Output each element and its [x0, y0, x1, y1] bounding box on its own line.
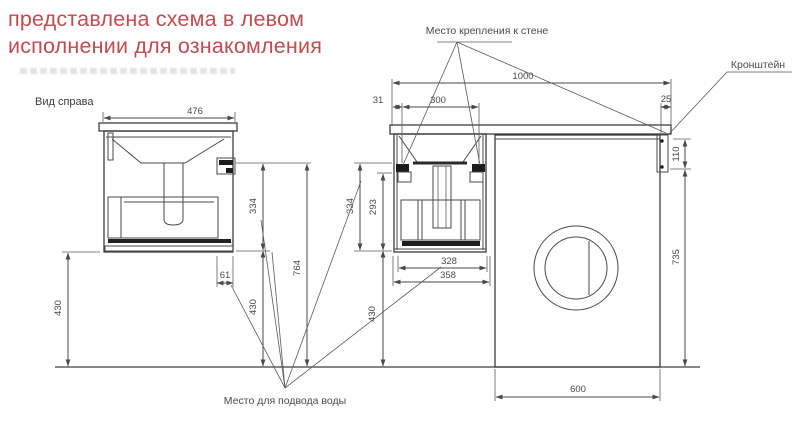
- dim-300: 300: [430, 95, 446, 106]
- side-cabinet: [104, 131, 233, 252]
- view-title: Вид справа: [35, 96, 94, 108]
- dim-430-front: 430: [367, 306, 378, 322]
- dim-430-side: 430: [248, 299, 259, 315]
- water-supply-label: Место для подвода воды: [224, 395, 346, 407]
- front-drawer: [401, 200, 480, 246]
- countertop-bracket: [657, 135, 668, 172]
- dim-430-left: 430: [53, 300, 64, 316]
- bracket-label: Кронштейн: [731, 59, 785, 71]
- side-bottom-rails: [105, 241, 233, 251]
- front-countertop: [390, 125, 671, 134]
- wall-mount-label: Место крепления к стене: [426, 25, 549, 37]
- technical-drawing: 476 430 61 334 430 764: [0, 0, 800, 426]
- side-countertop: [99, 123, 237, 131]
- front-drain-pipe: [433, 166, 451, 228]
- front-mount-bracket-right: [470, 164, 485, 182]
- washing-machine-body: [495, 135, 660, 367]
- drawing-sheet: представлена схема в левом исполнении дл…: [0, 0, 800, 426]
- front-mount-bracket-left: [396, 164, 411, 182]
- side-view-drawing: [99, 123, 237, 252]
- washing-machine-drawing: [495, 135, 668, 367]
- side-mount-detail: [217, 158, 235, 174]
- dim-735: 735: [671, 249, 682, 265]
- washing-machine-door: [534, 226, 618, 310]
- dim-25: 25: [661, 94, 672, 105]
- front-cabinet: [394, 134, 486, 252]
- dim-31: 31: [373, 95, 384, 106]
- dim-61: 61: [220, 270, 231, 281]
- dim-334-side: 334: [248, 198, 259, 214]
- front-sink-basin: [399, 136, 481, 162]
- front-view-drawing: [390, 125, 671, 252]
- dim-764: 764: [292, 260, 303, 276]
- dim-328: 328: [441, 256, 457, 267]
- dim-476: 476: [187, 106, 203, 117]
- bracket-callout: Кронштейн: [669, 59, 792, 134]
- dim-110: 110: [671, 146, 682, 161]
- dim-358: 358: [440, 270, 456, 281]
- dim-1000: 1000: [512, 71, 533, 82]
- side-view-dimensions: 476 430 61 334 430 764: [53, 106, 311, 366]
- dim-600: 600: [570, 384, 586, 395]
- side-drain-pipe: [164, 163, 183, 225]
- dim-293: 293: [368, 199, 379, 215]
- dim-334-front: 334: [345, 198, 356, 214]
- side-sink-basin: [106, 137, 231, 163]
- side-drawer: [108, 197, 218, 238]
- machine-dimensions: 110 735 600: [495, 139, 691, 401]
- view-right-label: Вид справа: [35, 96, 94, 108]
